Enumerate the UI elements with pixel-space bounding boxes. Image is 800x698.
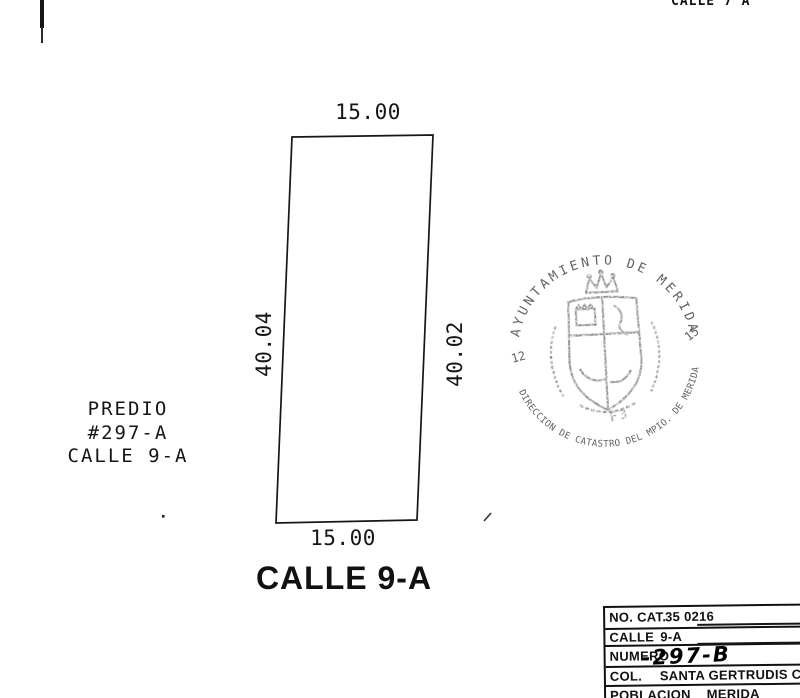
table-row: NO. CAT. 35 0216	[605, 604, 800, 630]
row-label: NO. CAT.	[609, 607, 661, 628]
municipal-stamp: AYUNTAMIENTO DE MERIDA DIRECCION DE CATA…	[505, 247, 705, 457]
dimension-left: 40.04	[252, 307, 276, 381]
street-name-label: CALLE 9-A	[242, 560, 446, 597]
stray-tick-mark	[484, 513, 491, 521]
cadastral-plan-page: CALLE 7 A 15.00 15.00 40.04 40.02 PREDIO…	[0, 0, 800, 698]
row-label: CALLE	[609, 629, 656, 645]
predio-line-3: CALLE 9-A	[53, 445, 203, 469]
predio-label-block: PREDIO #297-A CALLE 9-A	[53, 398, 203, 469]
stamp-code: F3	[608, 407, 630, 426]
parcel-outline	[276, 135, 433, 523]
dimension-right: 40.02	[443, 317, 467, 391]
row-value: MERIDA	[707, 686, 760, 698]
row-value: 9-A	[660, 629, 682, 644]
handwritten-number: -297-B	[641, 641, 731, 671]
row-value: 35 0216	[665, 609, 714, 625]
predio-line-2: #297-A	[53, 422, 203, 446]
predio-line-1: PREDIO	[53, 398, 203, 422]
stray-dot-mark	[162, 515, 165, 518]
property-info-table: NO. CAT. 35 0216 CALLE 9-A NUMERO COL. S…	[603, 602, 800, 698]
dimension-bottom: 15.00	[306, 526, 380, 550]
dimension-top: 15.00	[331, 100, 405, 124]
stamp-number-left: 12	[510, 348, 528, 365]
coat-of-arms-emblem	[547, 268, 663, 415]
row-label: POBLACION	[610, 686, 691, 698]
